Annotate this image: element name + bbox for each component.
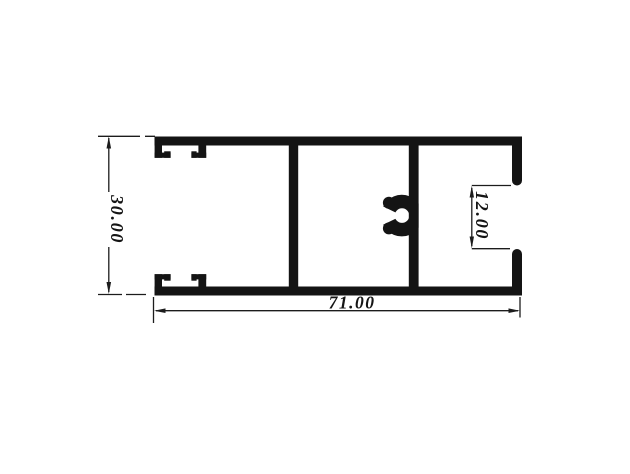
svg-text:12.00: 12.00 — [472, 191, 492, 240]
svg-text:71.00: 71.00 — [329, 293, 376, 313]
svg-text:30.00: 30.00 — [107, 194, 127, 244]
